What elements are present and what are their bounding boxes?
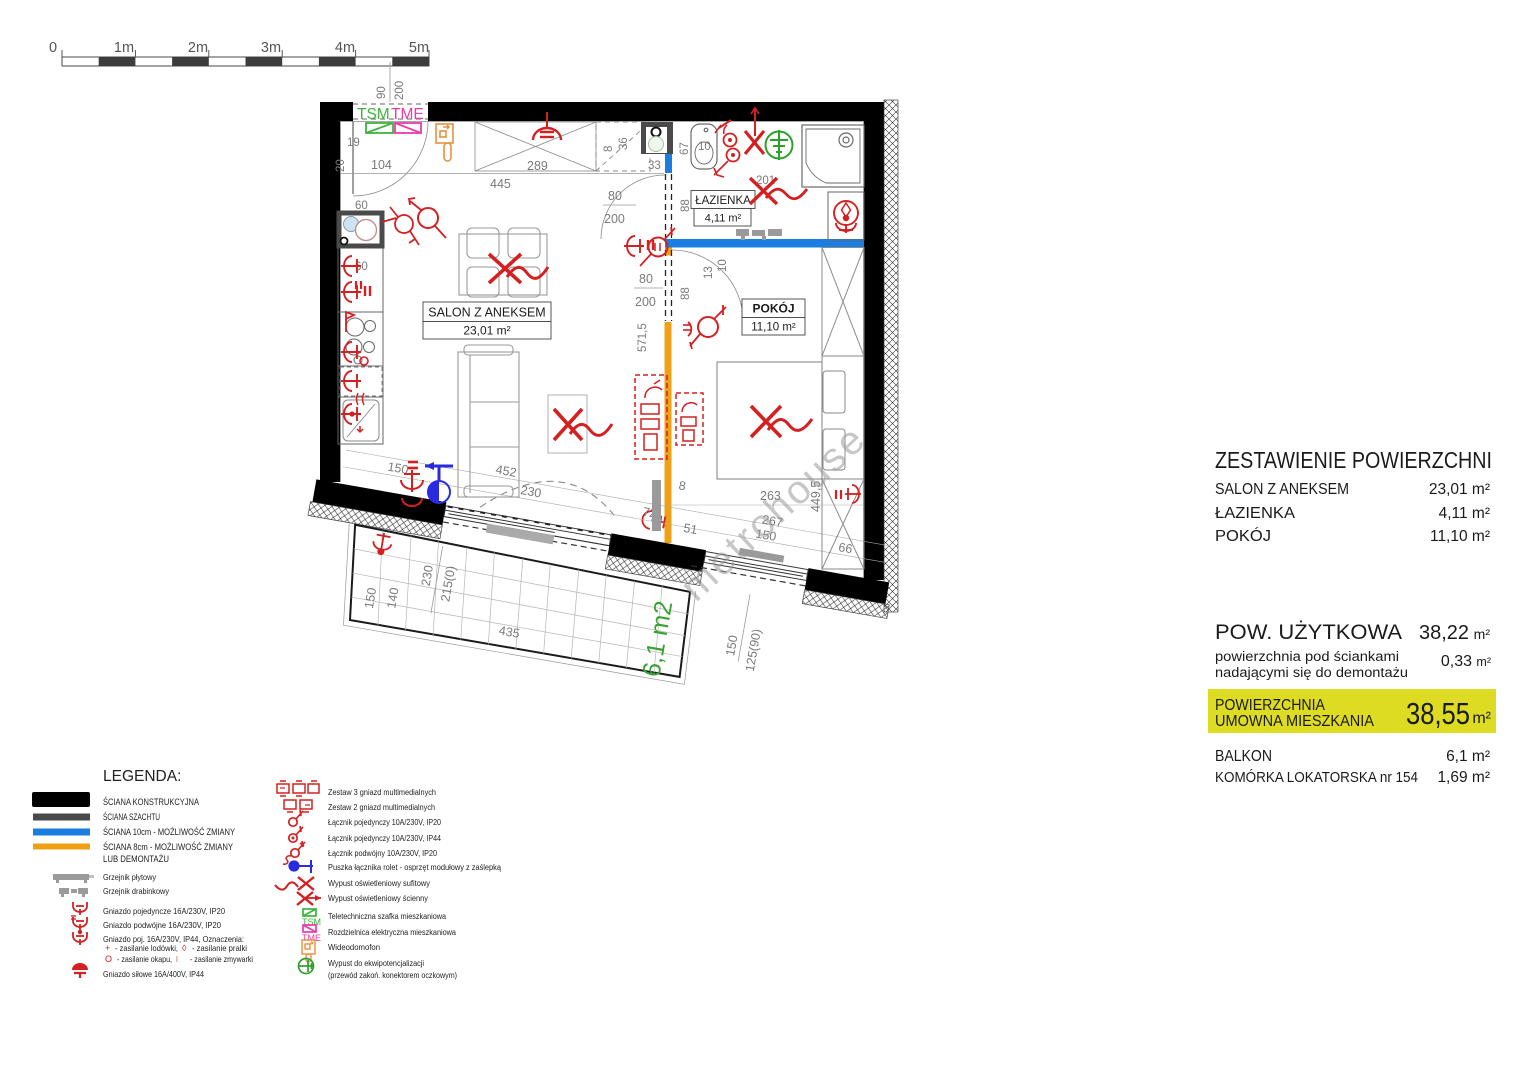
svg-text:ŚCIANA KONSTRUKCYJNA: ŚCIANA KONSTRUKCYJNA [103,796,200,808]
svg-text:104: 104 [371,158,392,172]
svg-text:m²: m² [1474,626,1491,642]
svg-text:- zasilanie okapu,: - zasilanie okapu, [117,954,172,964]
svg-text:Wypust oświetleniowy sufitowy: Wypust oświetleniowy sufitowy [328,879,430,888]
svg-text:11,10 m²: 11,10 m² [1430,528,1490,545]
svg-text:19: 19 [347,137,360,149]
svg-text:TME: TME [391,106,424,123]
svg-text:Wypust oświetleniowy ścienny: Wypust oświetleniowy ścienny [328,894,428,903]
svg-text:POWIERZCHNIA: POWIERZCHNIA [1215,697,1326,714]
svg-text:◊: ◊ [182,943,187,953]
svg-text:60: 60 [355,200,368,212]
svg-text:Zestaw 2 gniazd multimedialnyc: Zestaw 2 gniazd multimedialnych [328,803,435,812]
svg-text:TSM: TSM [357,106,390,123]
svg-text:200: 200 [604,212,625,226]
svg-text:LUB DEMONTAŻU: LUB DEMONTAŻU [103,854,169,865]
svg-text:O: O [105,954,112,964]
svg-text:KOMÓRKA LOKATORSKA nr 154: KOMÓRKA LOKATORSKA nr 154 [1215,769,1418,786]
svg-text:LEGENDA:: LEGENDA: [103,768,181,785]
svg-text:- zasilanie lodówki,: - zasilanie lodówki, [115,943,178,953]
svg-text:Wideodomofon: Wideodomofon [328,943,380,952]
svg-text:ŚCIANA 8cm - MOŻLIWOŚĆ ZMIANY: ŚCIANA 8cm - MOŻLIWOŚĆ ZMIANY [103,841,234,853]
svg-text:4,11 m²: 4,11 m² [705,213,742,225]
svg-text:80: 80 [639,272,653,286]
svg-text:Gniazdo podwójne 16A/230V, IP2: Gniazdo podwójne 16A/230V, IP20 [103,920,221,930]
svg-text:- zasilanie pralki: - zasilanie pralki [192,943,247,953]
svg-text:67: 67 [679,142,691,155]
svg-text:13: 13 [703,266,715,279]
svg-text:33: 33 [648,160,661,172]
svg-text:200: 200 [635,295,656,309]
svg-text:ŁAZIENKA: ŁAZIENKA [1215,505,1296,522]
svg-text:Puszka łącznika rolet - osprzę: Puszka łącznika rolet - osprzęt modułowy… [328,863,502,872]
svg-text:51: 51 [682,521,698,537]
svg-text:66: 66 [837,540,853,556]
svg-text:POKÓJ: POKÓJ [1215,528,1271,545]
svg-text:POKÓJ: POKÓJ [752,301,794,316]
svg-text:Grzejnik płytowy: Grzejnik płytowy [103,872,157,882]
svg-text:0: 0 [49,40,57,56]
svg-text:ŁAZIENKA: ŁAZIENKA [695,195,751,207]
svg-text:23,01 m²: 23,01 m² [1429,481,1490,498]
svg-text:Grzejnik drabinkowy: Grzejnik drabinkowy [103,886,170,896]
svg-text:88: 88 [680,287,692,300]
svg-text:2m: 2m [188,40,208,56]
svg-text:Łącznik pojedynczy 10A/230V, I: Łącznik pojedynczy 10A/230V, IP20 [328,818,441,827]
svg-text:88: 88 [680,199,692,212]
svg-text:Rozdzielnica elektryczna miesz: Rozdzielnica elektryczna mieszkaniowa [328,928,456,937]
svg-text:Gniazdo pojedyncze 16A/230V, I: Gniazdo pojedyncze 16A/230V, IP20 [103,906,225,916]
svg-text:8: 8 [603,146,615,152]
svg-text:SALON Z ANEKSEM: SALON Z ANEKSEM [1215,481,1349,498]
svg-text:23,01 m²: 23,01 m² [463,324,510,338]
svg-text:445: 445 [490,177,511,191]
svg-text:20: 20 [335,159,347,172]
svg-text:36: 36 [618,137,630,150]
svg-text:SALON Z ANEKSEM: SALON Z ANEKSEM [428,306,545,320]
svg-text:(przewód zakoń. konektorem ocz: (przewód zakoń. konektorem oczkowym) [328,971,457,980]
svg-text:UMOWNA MIESZKANIA: UMOWNA MIESZKANIA [1215,713,1375,730]
svg-text:ŚCIANA 10cm - MOŻLIWOŚĆ ZMIANY: ŚCIANA 10cm - MOŻLIWOŚĆ ZMIANY [103,826,236,838]
svg-text:10: 10 [698,141,711,153]
svg-text:Wypust do ekwipotencjalizacji: Wypust do ekwipotencjalizacji [328,959,424,968]
svg-text:90: 90 [376,86,388,99]
svg-text:powierzchnia pod ściankami: powierzchnia pod ściankami [1215,649,1399,664]
svg-text:38,55: 38,55 [1406,696,1470,731]
svg-text:0,33: 0,33 [1441,653,1472,670]
svg-text:571,5: 571,5 [637,323,649,352]
svg-text:80: 80 [608,189,622,203]
svg-text:4m: 4m [335,40,355,56]
svg-text:m²: m² [1472,710,1491,727]
svg-text:Zestaw 3 gniazd multimedialnyc: Zestaw 3 gniazd multimedialnych [328,788,436,797]
svg-text:5m: 5m [409,40,429,56]
svg-text:Teletechniczna szafka mieszkan: Teletechniczna szafka mieszkaniowa [328,912,446,921]
svg-text:POW. UŻYTKOWA: POW. UŻYTKOWA [1215,620,1403,644]
svg-text:nadającymi się do demontażu: nadającymi się do demontażu [1215,665,1408,680]
svg-text:200: 200 [394,81,406,100]
svg-text:Łącznik podwójny 10A/230V, IP2: Łącznik podwójny 10A/230V, IP20 [328,849,437,858]
svg-text:3m: 3m [261,40,281,56]
svg-text:6,1 m²: 6,1 m² [1446,748,1490,765]
svg-text:ŚCIANA SZACHTU: ŚCIANA SZACHTU [103,811,160,823]
svg-text:+: + [105,943,110,953]
svg-text:ZESTAWIENIE POWIERZCHNI: ZESTAWIENIE POWIERZCHNI [1215,447,1492,473]
svg-text:38,22: 38,22 [1419,621,1469,644]
svg-text:1,69 m²: 1,69 m² [1437,769,1490,786]
svg-text:m²: m² [1476,655,1491,669]
svg-text:- zasilanie zmywarki: - zasilanie zmywarki [190,954,253,964]
svg-text:Łącznik pojedynczy 10A/230V, I: Łącznik pojedynczy 10A/230V, IP44 [328,834,441,843]
svg-text:1m: 1m [114,40,134,56]
svg-text:Gniazdo siłowe 16A/400V, IP44: Gniazdo siłowe 16A/400V, IP44 [103,969,204,979]
svg-text:⧘: ⧘ [176,954,178,964]
svg-text:11,10 m²: 11,10 m² [751,322,796,334]
svg-text:10: 10 [717,259,729,272]
svg-text:4,11 m²: 4,11 m² [1439,505,1490,522]
svg-text:BALKON: BALKON [1215,748,1272,765]
